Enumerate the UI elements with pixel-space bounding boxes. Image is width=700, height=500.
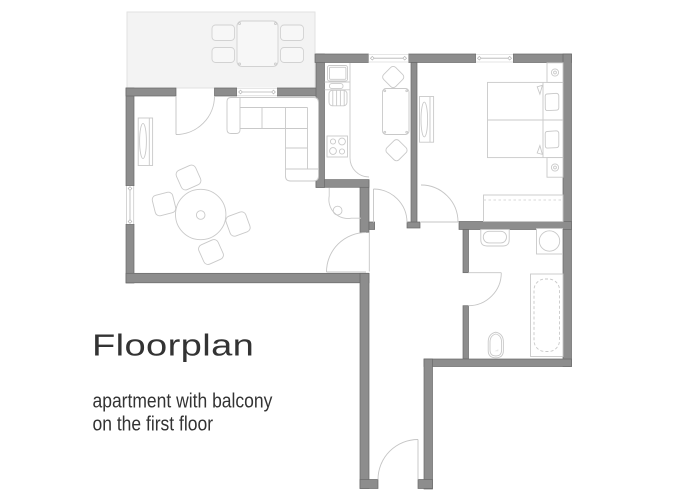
svg-text:Floorplan: Floorplan [92,329,254,363]
svg-text:on the first floor: on the first floor [93,412,214,434]
svg-text:apartment with balcony: apartment with balcony [93,389,273,411]
